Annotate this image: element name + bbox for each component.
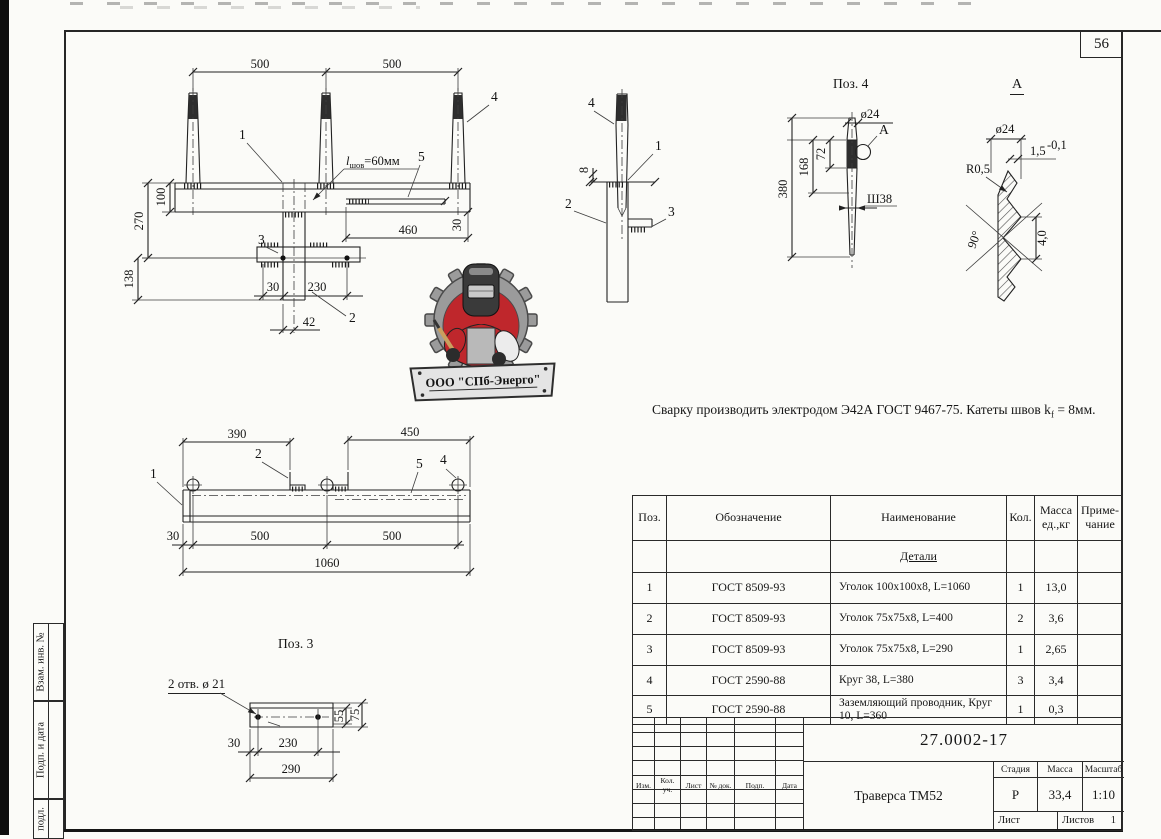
spec-section-pos bbox=[633, 541, 667, 572]
frame-left bbox=[64, 30, 66, 832]
title-block: Изм. Кол. уч. Лист № док. Подп. Дата 27.… bbox=[632, 717, 1123, 831]
stage-mass-scale: Стадия Масса Масштаб Р 33,4 1:10 Лист Ли… bbox=[994, 762, 1124, 829]
row2-mass: 3,6 bbox=[1035, 604, 1078, 634]
side-plate bbox=[628, 219, 652, 230]
sidebar-label-inv: подл. bbox=[36, 807, 47, 831]
plan-bar bbox=[183, 490, 470, 522]
row1-name: Уголок 100х100х8, L=1060 bbox=[831, 573, 1007, 603]
detail-crest-tol: -0,1 bbox=[1047, 138, 1067, 152]
sidebar-label-vzam: Взам. инв. № bbox=[36, 632, 47, 691]
spec-col-mass: Масса ед.,кг bbox=[1035, 496, 1078, 540]
detail-dia: ø24 bbox=[996, 122, 1016, 136]
front-label-3: 3 bbox=[258, 232, 265, 247]
row1-qty: 1 bbox=[1007, 573, 1035, 603]
pos4-dim-380: 380 bbox=[776, 180, 790, 199]
plan-clips bbox=[290, 472, 348, 490]
spec-col-mass-line1: Масса bbox=[1040, 504, 1072, 518]
row4-doc: ГОСТ 2590-88 bbox=[667, 666, 831, 695]
spec-row-3: 3 ГОСТ 8509-93 Уголок 75х75х8, L=290 1 2… bbox=[633, 635, 1122, 666]
pos4-thread: Ш38 bbox=[867, 192, 892, 206]
detail-radius: R0,5 bbox=[966, 162, 990, 176]
dim-138: 138 bbox=[122, 270, 136, 289]
pos3-right-dimensions: 55 75 bbox=[332, 699, 368, 731]
scale-value: 1:10 bbox=[1083, 778, 1124, 811]
plan-dim-1060: 1060 bbox=[315, 556, 340, 570]
pos4-drawing: А ø24 72 168 380 Ш38 bbox=[783, 70, 958, 320]
welder-mask-icon bbox=[463, 264, 499, 316]
company-logo: ООО "СПб-Энерго" bbox=[403, 258, 563, 403]
welding-note-end: = 8мм. bbox=[1054, 402, 1096, 417]
sidebar-box-podp-empty bbox=[48, 702, 63, 798]
spec-col-qty: Кол. bbox=[1007, 496, 1035, 540]
front-top-dimension: 500 500 bbox=[189, 57, 462, 91]
pos4-callout-a: А bbox=[856, 122, 890, 160]
logo-banner: ООО "СПб-Энерго" bbox=[411, 363, 556, 400]
dim-460: 460 bbox=[399, 223, 418, 237]
sidebar-box-podp: Подп. и дата bbox=[33, 701, 64, 799]
dim-42: 42 bbox=[303, 315, 316, 329]
pos3-dim-55: 55 bbox=[332, 710, 346, 723]
scan-noise-top bbox=[70, 2, 990, 5]
sidebar-label-podp: Подп. и дата bbox=[36, 722, 47, 778]
detail-a-drawing: ø24 1,5 -0,1 R0,5 90° 4,0 bbox=[958, 75, 1123, 310]
stage-value: Р bbox=[994, 778, 1038, 811]
dim-230: 230 bbox=[308, 280, 327, 294]
page-number: 56 bbox=[1094, 36, 1109, 53]
sheet-label: Лист bbox=[994, 812, 1058, 829]
revision-grid: Изм. Кол. уч. Лист № док. Подп. Дата bbox=[633, 718, 804, 829]
spec-col-pos: Поз. bbox=[633, 496, 667, 540]
row2-doc: ГОСТ 8509-93 bbox=[667, 604, 831, 634]
row2-note bbox=[1078, 604, 1122, 634]
binder-bar bbox=[0, 0, 9, 835]
sidebar-box-vzam-empty bbox=[48, 624, 63, 700]
spec-col-note-line2: чание bbox=[1085, 518, 1115, 532]
sidebar-box-inv: подл. bbox=[33, 799, 64, 839]
side-label-4: 4 bbox=[588, 95, 595, 110]
pos4-dim-72: 72 bbox=[814, 148, 828, 161]
pos4-dim-168: 168 bbox=[797, 158, 811, 177]
dim-30-right: 30 bbox=[450, 219, 464, 232]
sidebar-box-inv-empty bbox=[48, 800, 63, 838]
row3-name: Уголок 75х75х8, L=290 bbox=[831, 635, 1007, 665]
plan-label-4: 4 bbox=[440, 452, 447, 467]
row3-doc: ГОСТ 8509-93 bbox=[667, 635, 831, 665]
spec-row-1: 1 ГОСТ 8509-93 Уголок 100х100х8, L=1060 … bbox=[633, 573, 1122, 604]
side-view-drawing: 8 4 1 2 3 bbox=[555, 80, 805, 315]
plan-labels: 1 2 5 4 bbox=[150, 446, 456, 505]
spec-col-note-line1: Приме- bbox=[1081, 504, 1119, 518]
row1-doc: ГОСТ 8509-93 bbox=[667, 573, 831, 603]
detail-crest: 1,5 bbox=[1030, 144, 1046, 158]
dim-30-bottom: 30 bbox=[267, 280, 280, 294]
welding-note-main: Сварку производить электродом Э42А ГОСТ … bbox=[652, 402, 1051, 417]
pos4-callout-label: А bbox=[879, 122, 889, 137]
spec-table: Поз. Обозначение Наименование Кол. Масса… bbox=[632, 495, 1123, 725]
front-label-1: 1 bbox=[239, 127, 246, 142]
spec-row-4: 4 ГОСТ 2590-88 Круг 38, L=380 3 3,4 bbox=[633, 666, 1122, 696]
row1-pos: 1 bbox=[633, 573, 667, 603]
front-bar bbox=[175, 183, 470, 212]
mass-value: 33,4 bbox=[1038, 778, 1083, 811]
sp- section-name: Детали bbox=[831, 541, 1007, 572]
weld-note-sub: шов bbox=[349, 160, 364, 170]
mass-label: Масса bbox=[1038, 762, 1083, 777]
spec-section-doc bbox=[667, 541, 831, 572]
sheets-value: 1 bbox=[1111, 815, 1116, 826]
frame-top bbox=[64, 30, 1161, 32]
detail-angle: 90° bbox=[965, 229, 984, 250]
pos3-dim-75: 75 bbox=[348, 709, 362, 722]
row1-mass: 13,0 bbox=[1035, 573, 1078, 603]
row4-note bbox=[1078, 666, 1122, 695]
side-pin bbox=[616, 89, 628, 242]
doc-number: 27.0002-17 bbox=[920, 730, 1008, 750]
scan-noise-top2 bbox=[120, 6, 420, 9]
plan-label-5: 5 bbox=[416, 456, 423, 471]
dim-8: 8 bbox=[577, 167, 591, 173]
side-flange: 8 bbox=[577, 167, 659, 186]
detail-depth: 4,0 bbox=[1035, 230, 1049, 246]
pos3-dim-230: 230 bbox=[279, 736, 298, 750]
spec-col-mass-line2: ед.,кг bbox=[1042, 518, 1070, 532]
pos3-plate bbox=[220, 693, 333, 727]
plan-dim-30: 30 bbox=[167, 529, 180, 543]
plan-label-1: 1 bbox=[150, 466, 157, 481]
plan-dim-450: 450 bbox=[401, 425, 420, 439]
doc-number-cell: 27.0002-17 bbox=[804, 718, 1124, 762]
revision-header-row: Изм. Кол. уч. Лист № док. Подп. Дата bbox=[633, 776, 803, 790]
plan-dim-500-left: 500 bbox=[251, 529, 270, 543]
row3-pos: 3 bbox=[633, 635, 667, 665]
row4-name: Круг 38, L=380 bbox=[831, 666, 1007, 695]
sheets-label: Листов bbox=[1062, 815, 1094, 826]
sidebar-box-vzam: Взам. инв. № bbox=[33, 623, 64, 701]
dim-500-left: 500 bbox=[251, 57, 270, 71]
row2-pos: 2 bbox=[633, 604, 667, 634]
detail-a-dimensions: ø24 1,5 -0,1 R0,5 90° 4,0 bbox=[965, 122, 1067, 271]
row4-qty: 3 bbox=[1007, 666, 1035, 695]
scale-label: Масштаб bbox=[1083, 762, 1124, 777]
plan-dim-500-right: 500 bbox=[383, 529, 402, 543]
page-number-box: 56 bbox=[1080, 32, 1122, 58]
front-weld-length-note: lшов=60мм bbox=[311, 154, 418, 202]
front-plate bbox=[142, 245, 366, 265]
row4-mass: 3,4 bbox=[1035, 666, 1078, 695]
pos4-dia: ø24 bbox=[861, 107, 881, 121]
side-label-2: 2 bbox=[565, 196, 572, 211]
product-title-cell: Траверса ТМ52 bbox=[804, 762, 994, 829]
pos3-dim-30: 30 bbox=[228, 736, 241, 750]
pos4-pin bbox=[847, 112, 858, 268]
plan-label-2: 2 bbox=[255, 446, 262, 461]
row1-note bbox=[1078, 573, 1122, 603]
plan-bottom-dimensions: 30 500 500 1060 bbox=[167, 495, 474, 576]
row3-note bbox=[1078, 635, 1122, 665]
spec-row-2: 2 ГОСТ 8509-93 Уголок 75х75х8, L=400 2 3… bbox=[633, 604, 1122, 635]
spec-section-qty bbox=[1007, 541, 1035, 572]
svg-text:lшов=60мм: lшов=60мм bbox=[346, 154, 400, 170]
spec-section-note bbox=[1078, 541, 1122, 572]
front-label-2: 2 bbox=[349, 310, 356, 325]
pos3-drawing: 55 75 30 230 290 bbox=[150, 630, 420, 795]
dim-100: 100 bbox=[154, 188, 168, 207]
row4-pos: 4 bbox=[633, 666, 667, 695]
front-label-5: 5 bbox=[418, 149, 425, 164]
stage-label: Стадия bbox=[994, 762, 1038, 777]
product-title: Траверса ТМ52 bbox=[854, 788, 943, 804]
dim-270: 270 bbox=[132, 212, 146, 231]
front-post bbox=[283, 179, 305, 333]
spec-col-name: Наименование bbox=[831, 496, 1007, 540]
row3-qty: 1 bbox=[1007, 635, 1035, 665]
spec-section-row: Детали bbox=[633, 541, 1122, 573]
pos3-bottom-dimensions: 30 230 290 bbox=[228, 725, 340, 782]
row2-name: Уголок 75х75х8, L=400 bbox=[831, 604, 1007, 634]
front-bottom-dimensions: 30 230 42 bbox=[254, 262, 363, 334]
row3-mass: 2,65 bbox=[1035, 635, 1078, 665]
spec-col-note: Приме- чание bbox=[1078, 496, 1122, 540]
dim-500-right: 500 bbox=[383, 57, 402, 71]
front-label-4: 4 bbox=[491, 89, 498, 104]
front-conductor bbox=[346, 197, 449, 205]
spec-col-doc: Обозначение bbox=[667, 496, 831, 540]
plan-dim-390: 390 bbox=[228, 427, 247, 441]
weld-note-value: =60мм bbox=[364, 154, 399, 168]
pos3-dim-290: 290 bbox=[282, 762, 301, 776]
plan-view-drawing: 390 450 1 2 5 4 30 500 500 1060 bbox=[130, 425, 530, 600]
plan-top-dimensions: 390 450 bbox=[179, 425, 474, 487]
row2-qty: 2 bbox=[1007, 604, 1035, 634]
spec-header-row: Поз. Обозначение Наименование Кол. Масса… bbox=[633, 496, 1122, 541]
side-label-3: 3 bbox=[668, 204, 675, 219]
plan-bolts bbox=[184, 476, 467, 494]
side-label-1: 1 bbox=[655, 138, 662, 153]
welding-note: Сварку производить электродом Э42А ГОСТ … bbox=[652, 402, 1096, 420]
spec-section-mass bbox=[1035, 541, 1078, 572]
